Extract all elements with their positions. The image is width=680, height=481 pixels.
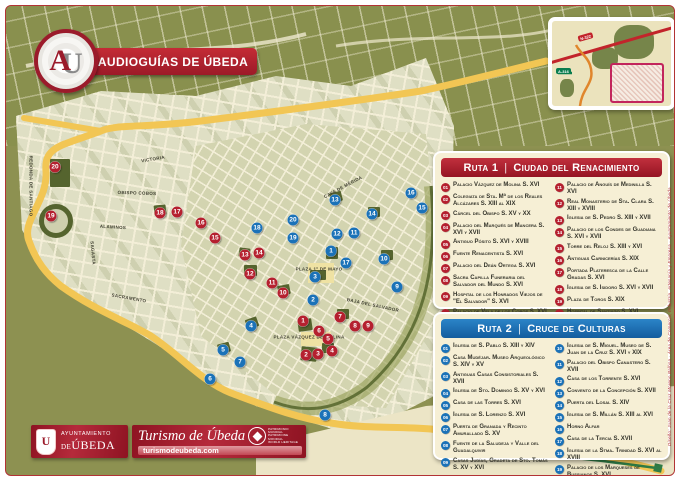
item-number-badge: 13 (555, 216, 564, 225)
legend-item[interactable]: 07Puerta de Granada y Recinto Amurallado… (441, 424, 548, 438)
legend-item[interactable]: 03Cárcel del Obispo S. XV y XX (441, 211, 548, 221)
ruta2-title: Ruta 2 (477, 323, 512, 335)
item-number-badge: 02 (441, 356, 450, 365)
item-label: Antiguas Casas Consistoriales S. XVII (453, 372, 548, 386)
ayuntamiento-box: U Ayuntamiento deÚbeda (31, 425, 128, 458)
item-label: Iglesia de S. Miguel. Museo de S. Juan d… (567, 343, 662, 357)
legend-item[interactable]: 12Real Monasterio de Sta. Clara S. XIII … (555, 199, 662, 213)
map-marker-ruta2-14[interactable]: 14 (367, 209, 378, 220)
de-label: de (61, 443, 71, 451)
item-number-badge: 01 (441, 344, 450, 353)
legend-item[interactable]: 06Fuente Renacentista S. XVI (441, 251, 548, 261)
item-number-badge: 12 (555, 199, 564, 208)
item-number-badge: 10 (555, 344, 564, 353)
legend-item[interactable]: 02Colegiata de Sta. Mª de los Reales Alc… (441, 194, 548, 208)
item-label: Colegiata de Sta. Mª de los Reales Alcáz… (453, 194, 548, 208)
legend-item[interactable]: 10Iglesia de S. Miguel. Museo de S. Juan… (555, 343, 662, 357)
item-label: Palacio del Obispo Canastero S. XVII (567, 360, 662, 374)
legend-item[interactable]: 18Iglesia de S. Isidoro S. XVI y XVII (555, 285, 662, 295)
item-number-badge: 16 (555, 425, 564, 434)
header-separator: | (518, 323, 521, 335)
logo-letter-a: A (49, 44, 71, 78)
map-marker-ruta2-2[interactable]: 2 (308, 295, 319, 306)
map-marker-ruta1-14[interactable]: 14 (254, 248, 265, 259)
map-marker-ruta1-13[interactable]: 13 (240, 250, 251, 261)
item-label: Iglesia de S. Pedro S. XIII y XVII (567, 215, 651, 222)
item-label: Casa de las Torres S. XVI (453, 400, 521, 407)
map-marker-ruta2-20[interactable]: 20 (288, 215, 299, 226)
item-number-badge: 17 (555, 268, 564, 277)
item-number-badge: 06 (441, 413, 450, 422)
item-label: Real Monasterio de Sta. Clara S. XIII y … (567, 199, 662, 213)
legend-item[interactable]: 09Casas Judías, Gradeta de Sto. Tomás S.… (441, 458, 548, 472)
item-number-badge: 01 (441, 183, 450, 192)
item-label: Palacio Vázquez de Molina S. XVI (453, 182, 539, 189)
item-label: Palacio del Marqués de Mancera S. XVI y … (453, 223, 548, 237)
street-label: Obispo Cobos (117, 190, 156, 196)
legend-item[interactable]: 02Casa Mudéjar. Museo Arqueológico S. XI… (441, 355, 548, 369)
item-label: Torre del Reloj S. XIII y XVI (567, 244, 642, 251)
item-label: Fuente Renacentista S. XVI (453, 251, 523, 258)
legend-item[interactable]: 19Palacio de los Marqueses de Bussianos … (555, 465, 662, 476)
item-number-badge: 14 (555, 228, 564, 237)
legend-item[interactable]: 15Torre del Reloj S. XIII y XVI (555, 244, 662, 254)
item-number-badge: 04 (441, 389, 450, 398)
item-number-badge: 11 (555, 183, 564, 192)
map-marker-ruta2-18[interactable]: 18 (252, 223, 263, 234)
legend-item[interactable]: 16Horno Alfar (555, 424, 662, 434)
map-marker-ruta1-18[interactable]: 18 (155, 208, 166, 219)
map-marker-ruta1-15[interactable]: 15 (210, 233, 221, 244)
map-marker-ruta1-1[interactable]: 1 (298, 316, 309, 327)
item-number-badge: 14 (555, 401, 564, 410)
turismo-title: Turismo de Úbeda (138, 428, 245, 445)
legend-item[interactable]: 17Portada Plateresca de la Calle Gradas … (555, 268, 662, 282)
ruta1-name: Ciudad del Renacimiento (513, 162, 639, 174)
unesco-emblem-icon (248, 427, 266, 445)
item-label: Puerta del Losal S. XIV (567, 400, 629, 407)
street-label: Plaza 1º de Mayo (296, 267, 343, 272)
legend-item[interactable]: 13Convento de la Concepción S. XVII (555, 388, 662, 398)
item-label: Antiguas Carnicerías S. XIX (567, 256, 639, 263)
item-label: Iglesia de la Stma. Trinidad S. XVI al X… (567, 448, 662, 462)
street-label: Baja del Salvador (346, 297, 399, 313)
title-banner: AUDIOGUÍAS DE ÚBEDA (89, 48, 257, 75)
item-label: Palacio del Deán Ortega S. XVI (453, 263, 535, 270)
item-label: Casa Mudéjar. Museo Arqueológico S. XIV … (453, 355, 548, 369)
inset-oldtown-highlight (610, 63, 664, 103)
item-label: Casas Judías, Gradeta de Sto. Tomás S. X… (453, 458, 548, 472)
item-label: Casa de la Tercia S. XVII (567, 436, 632, 443)
map-marker-ruta2-12[interactable]: 12 (332, 229, 343, 240)
map-marker-ruta1-12[interactable]: 12 (245, 269, 256, 280)
map-marker-ruta1-7[interactable]: 7 (335, 312, 346, 323)
item-number-badge: 03 (441, 211, 450, 220)
item-label: Iglesia de S. Millán S. XIII al XVI (567, 412, 653, 419)
legend-item[interactable]: 12Casa de los Torrente S. XVI (555, 376, 662, 386)
item-number-badge: 07 (441, 425, 450, 434)
map-marker-ruta2-7[interactable]: 7 (235, 357, 246, 368)
map-marker-ruta2-10[interactable]: 10 (379, 254, 390, 265)
street-label: Sagasta (89, 241, 96, 265)
item-label: Cárcel del Obispo S. XV y XX (453, 211, 531, 218)
item-number-badge: 09 (441, 458, 450, 467)
map-marker-ruta1-19[interactable]: 19 (46, 211, 57, 222)
legend-item[interactable]: 01Iglesia de S. Pablo S. XIII y XIV (441, 343, 548, 353)
legend-item[interactable]: 13Iglesia de S. Pedro S. XIII y XVII (555, 215, 662, 225)
item-label: Horno Alfar (567, 424, 600, 431)
ruta1-title: Ruta 1 (463, 162, 498, 174)
legend-item[interactable]: 15Iglesia de S. Millán S. XIII al XVI (555, 412, 662, 422)
city-label: Úbeda (71, 438, 115, 452)
item-number-badge: 13 (555, 389, 564, 398)
item-label: Antiguo Pósito S. XVI y XVIII (453, 239, 529, 246)
street-label: Victoria (141, 155, 165, 164)
legend-item[interactable]: 11Palacio de Anguís de Medinilla S. XVI (555, 182, 662, 196)
locator-inset-map: N-322 A-316 (548, 17, 675, 110)
item-number-badge: 18 (555, 285, 564, 294)
item-label: Portada Plateresca de la Calle Gradas S.… (567, 268, 662, 282)
item-number-badge: 18 (555, 449, 564, 458)
map-marker-ruta2-6[interactable]: 6 (205, 374, 216, 385)
item-label: Palacio de los Condes de Guadiana S. XVI… (567, 227, 662, 241)
map-marker-ruta2-3[interactable]: 3 (310, 272, 321, 283)
item-number-badge: 05 (441, 401, 450, 410)
map-marker-ruta1-5[interactable]: 5 (323, 334, 334, 345)
street-label: Alaminos (100, 224, 127, 230)
item-number-badge: 15 (555, 413, 564, 422)
item-number-badge: 09 (441, 292, 450, 301)
legend-item[interactable]: 17Casa de la Tercia S. XVII (555, 436, 662, 446)
legend-item[interactable]: 11Palacio del Obispo Canastero S. XVII (555, 360, 662, 374)
item-label: Iglesia de S. Lorenzo S. XVI (453, 412, 525, 419)
map-marker-ruta2-16[interactable]: 16 (406, 188, 417, 199)
page-title: AUDIOGUÍAS DE ÚBEDA (98, 55, 248, 69)
legend-item[interactable]: 05Casa de las Torres S. XVI (441, 400, 548, 410)
map-marker-ruta1-6[interactable]: 6 (314, 326, 325, 337)
street-label: Sacramento (111, 292, 147, 303)
item-number-badge: 08 (441, 276, 450, 285)
map-marker-ruta1-3[interactable]: 3 (313, 349, 324, 360)
map-marker-ruta1-4[interactable]: 4 (327, 346, 338, 357)
legend-item[interactable]: 08Sacra Capilla Funeraria del Salvador d… (441, 275, 548, 289)
item-label: Palacio de los Marqueses de Bussianos S.… (567, 465, 662, 476)
street-label: Cava de Mérida (323, 175, 363, 199)
item-number-badge: 05 (441, 240, 450, 249)
item-number-badge: 07 (441, 264, 450, 273)
legend-item[interactable]: 01Palacio Vázquez de Molina S. XVI (441, 182, 548, 192)
map-marker-ruta1-16[interactable]: 16 (196, 218, 207, 229)
turismo-box: Turismo de Úbeda Patrimonio Mundial Patr… (132, 425, 306, 458)
item-label: Iglesia de S. Pablo S. XIII y XIV (453, 343, 535, 350)
item-number-badge: 08 (441, 441, 450, 450)
item-number-badge: 03 (441, 372, 450, 381)
legend-item[interactable]: 19Plaza de Toros S. XIX (555, 297, 662, 307)
inset-road-label: A-316 (556, 68, 571, 74)
item-label: Casa de los Torrente S. XVI (567, 376, 640, 383)
ruta1-header: Ruta 1 | Ciudad del Renacimiento (441, 158, 662, 177)
legend-item[interactable]: 09Hospital de los Honrados Viejos de "El… (441, 292, 548, 306)
legend-item[interactable]: 07Palacio del Deán Ortega S. XVI (441, 263, 548, 273)
item-number-badge: 04 (441, 223, 450, 232)
legend-item[interactable]: 14Palacio de los Condes de Guadiana S. X… (555, 227, 662, 241)
legend-item[interactable]: 18Iglesia de la Stma. Trinidad S. XVI al… (555, 448, 662, 462)
map-marker-ruta2-13[interactable]: 13 (330, 195, 341, 206)
item-number-badge: 11 (555, 360, 564, 369)
map-marker-ruta1-17[interactable]: 17 (172, 207, 183, 218)
audioguias-logo: A U (34, 29, 98, 93)
item-label: Iglesia de Sto. Domingo S. XV y XVI (453, 388, 545, 395)
map-marker-ruta2-17[interactable]: 17 (341, 258, 352, 269)
legend-item[interactable]: 04Iglesia de Sto. Domingo S. XV y XVI (441, 388, 548, 398)
item-number-badge: 02 (441, 195, 450, 204)
item-number-badge: 19 (555, 465, 564, 474)
street-label: Redonda de Santiago (29, 156, 34, 217)
legend-item[interactable]: 16Antiguas Carnicerías S. XIX (555, 256, 662, 266)
map-marker-ruta2-1[interactable]: 1 (326, 246, 337, 257)
legend-item[interactable]: 06Iglesia de S. Lorenzo S. XVI (441, 412, 548, 422)
legend-item[interactable]: 03Antiguas Casas Consistoriales S. XVII (441, 372, 548, 386)
item-label: Palacio de Anguís de Medinilla S. XVI (567, 182, 662, 196)
ruta2-panel: Ruta 2 | Cruce de Culturas 01Iglesia de … (433, 312, 670, 460)
map-marker-ruta2-5[interactable]: 5 (218, 345, 229, 356)
item-number-badge: 15 (555, 244, 564, 253)
design-credit: Diseño: Juan de la Cruz Moreno Balboa · … (667, 156, 672, 446)
map-marker-ruta1-8[interactable]: 8 (350, 321, 361, 332)
unesco-line: World Heritage (268, 441, 302, 444)
legend-item[interactable]: 05Antiguo Pósito S. XVI y XVIII (441, 239, 548, 249)
map-marker-ruta1-20[interactable]: 20 (50, 162, 61, 173)
map-marker-ruta1-11[interactable]: 11 (267, 278, 278, 289)
legend-item[interactable]: 08Fuente de la Saludeja y Valle del Guad… (441, 441, 548, 455)
turismo-url: turismodeubeda.com (138, 446, 302, 455)
ruta1-panel: Ruta 1 | Ciudad del Renacimiento 01Palac… (433, 151, 670, 309)
map-marker-ruta1-10[interactable]: 10 (278, 288, 289, 299)
item-number-badge: 12 (555, 377, 564, 386)
item-label: Hospital de los Honrados Viejos de "El S… (453, 292, 548, 306)
header-separator: | (504, 162, 507, 174)
item-number-badge: 16 (555, 256, 564, 265)
ruta2-name: Cruce de Culturas (527, 323, 626, 335)
item-label: Sacra Capilla Funeraria del Salvador del… (453, 275, 548, 289)
item-label: Convento de la Concepción S. XVII (567, 388, 656, 395)
map-marker-ruta2-9[interactable]: 9 (392, 282, 403, 293)
map-marker-ruta1-9[interactable]: 9 (363, 321, 374, 332)
legend-item[interactable]: 14Puerta del Losal S. XIV (555, 400, 662, 410)
item-number-badge: 19 (555, 297, 564, 306)
map-marker-ruta1-2[interactable]: 2 (301, 350, 312, 361)
item-label: Plaza de Toros S. XIX (567, 297, 625, 304)
ruta2-header: Ruta 2 | Cruce de Culturas (441, 319, 662, 338)
item-number-badge: 06 (441, 252, 450, 261)
item-label: Iglesia de S. Isidoro S. XVI y XVII (567, 285, 653, 292)
legend-item[interactable]: 04Palacio del Marqués de Mancera S. XVI … (441, 223, 548, 237)
map-sheet: 1234567891011121314151617181920123456789… (5, 5, 675, 476)
map-marker-ruta2-11[interactable]: 11 (349, 228, 360, 239)
item-label: Puerta de Granada y Recinto Amurallado S… (453, 424, 548, 438)
map-marker-ruta2-8[interactable]: 8 (320, 410, 331, 421)
item-label: Fuente de la Saludeja y Valle del Guadal… (453, 441, 548, 455)
map-marker-ruta2-19[interactable]: 19 (288, 233, 299, 244)
ubeda-crest-icon: U (36, 429, 56, 455)
item-number-badge: 17 (555, 437, 564, 446)
map-marker-ruta2-4[interactable]: 4 (246, 321, 257, 332)
street-label: Plaza Vázquez de Molina (274, 335, 345, 340)
map-marker-ruta2-15[interactable]: 15 (417, 203, 428, 214)
